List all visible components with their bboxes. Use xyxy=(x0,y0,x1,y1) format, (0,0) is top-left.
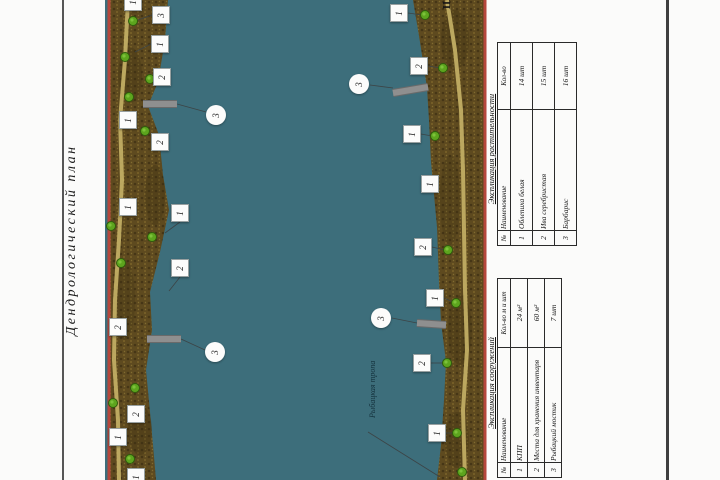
plant-marker-square: 1 xyxy=(403,125,421,143)
marker-number: 3 xyxy=(211,350,220,355)
table-cell: 1 xyxy=(511,463,528,478)
table-cell: 14 шт xyxy=(511,43,533,110)
marker-number: 1 xyxy=(408,132,417,137)
plant-marker-square: 1 xyxy=(119,198,137,216)
water-trail-label: Рыбацкая тропа xyxy=(367,333,452,359)
marker-number: 2 xyxy=(114,325,123,330)
structure-marker-circle: 3 xyxy=(206,105,226,125)
drawing-sheet: Дендрологический план xyxy=(0,0,720,480)
marker-number: 3 xyxy=(377,316,386,321)
plant-marker-square: 2 xyxy=(151,133,169,151)
table-cell: 2 xyxy=(528,463,545,478)
table-cell: Рыбацкий мостик xyxy=(545,348,562,463)
water-trail-label-text: Рыбацкая тропа xyxy=(368,361,377,418)
marker-number: 1 xyxy=(132,475,141,480)
table-cell: 3 xyxy=(545,463,562,478)
column-header: Наименование xyxy=(498,348,511,463)
plant-marker-square: 1 xyxy=(119,111,137,129)
plant-marker-square: 1 xyxy=(109,428,127,446)
marker-number: 2 xyxy=(419,245,428,250)
plant-marker-square: 1 xyxy=(428,424,446,442)
column-header: № xyxy=(498,231,511,246)
plant-marker-square: 1 xyxy=(421,175,439,193)
marker-number: 1 xyxy=(156,42,165,47)
plant-marker-square: 1 xyxy=(171,204,189,222)
structures-table-box: Экспликация сооружений №НаименованиеКол-… xyxy=(486,288,676,369)
marker-number: 2 xyxy=(132,412,141,417)
table-row: 2Ива серебристая15 шт xyxy=(533,43,555,246)
plant-marker-square: 2 xyxy=(410,57,428,75)
drawing-title-text: Дендрологический план xyxy=(64,144,79,335)
marker-number: 1 xyxy=(395,11,404,16)
table-row: 3Барбарис16 шт xyxy=(555,43,577,246)
table-cell: 1 xyxy=(511,231,533,246)
table-cell: 3 xyxy=(555,231,577,246)
marker-number: 1 xyxy=(124,205,133,210)
plant-marker-square: 2 xyxy=(109,318,127,336)
table-row: 1КПП24 м² xyxy=(511,279,528,478)
table-row: 2Места для хранения инвентаря60 м² xyxy=(528,279,545,478)
table-cell: 24 м² xyxy=(511,279,528,348)
marker-number: 2 xyxy=(415,64,424,69)
header-row: №НаименованиеКол-во м и шт xyxy=(498,279,511,478)
column-header: Кол-во xyxy=(498,43,511,110)
plant-marker-square: 1 xyxy=(151,35,169,53)
column-header: № xyxy=(498,463,511,478)
table-cell: Ива серебристая xyxy=(533,110,555,231)
table-cell: 16 шт xyxy=(555,43,577,110)
vegetation-table-title: Экспликация растительности xyxy=(486,52,496,246)
structure-marker-circle: 3 xyxy=(205,342,225,362)
marker-number: 1 xyxy=(124,118,133,123)
marker-number: 1 xyxy=(129,0,138,4)
marker-number: 1 xyxy=(431,296,440,301)
marker-number: 2 xyxy=(156,140,165,145)
plant-marker-square: 2 xyxy=(153,68,171,86)
header-row: №НаименованиеКол-во xyxy=(498,43,511,246)
structures-table: №НаименованиеКол-во м и шт1КПП24 м²2Мест… xyxy=(497,278,562,478)
table-cell: 2 xyxy=(533,231,555,246)
marker-number: 1 xyxy=(114,435,123,440)
marker-number: 2 xyxy=(176,266,185,271)
column-header: Кол-во м и шт xyxy=(498,279,511,348)
marker-number: 3 xyxy=(355,82,364,87)
table-cell: 60 м² xyxy=(528,279,545,348)
marker-number: 2 xyxy=(158,75,167,80)
vegetation-table: №НаименованиеКол-во1Облепиха белая14 шт2… xyxy=(497,42,577,246)
plant-marker-square: 2 xyxy=(127,405,145,423)
plant-marker-square: 2 xyxy=(414,238,432,256)
table-cell: Облепиха белая xyxy=(511,110,533,231)
marker-number: 1 xyxy=(426,182,435,187)
column-header: Наименование xyxy=(498,110,511,231)
plant-marker-square: 1 xyxy=(127,468,145,480)
marker-number: 3 xyxy=(157,13,166,18)
plant-marker-square: 3 xyxy=(152,6,170,24)
marker-number: 2 xyxy=(418,361,427,366)
marker-number: 1 xyxy=(433,431,442,436)
table-cell: КПП xyxy=(511,348,528,463)
plant-marker-square: 1 xyxy=(390,4,408,22)
table-row: 1Облепиха белая14 шт xyxy=(511,43,533,246)
vegetation-table-box: Экспликация растительности №Наименование… xyxy=(486,52,680,145)
plant-marker-square: 2 xyxy=(171,259,189,277)
table-cell: Барбарис xyxy=(555,110,577,231)
plant-marker-square: 1 xyxy=(426,289,444,307)
table-cell: 7 шт xyxy=(545,279,562,348)
plant-marker-square: 1 xyxy=(124,0,142,11)
table-cell: Места для хранения инвентаря xyxy=(528,348,545,463)
marker-number: 3 xyxy=(212,113,221,118)
plan-map: 1312121122211121121213333 Рыбацкая тропа… xyxy=(105,0,490,480)
table-row: 3Рыбацкий мостик7 шт xyxy=(545,279,562,478)
structure-marker-circle: 3 xyxy=(371,308,391,328)
table-cell: 15 шт xyxy=(533,43,555,110)
structures-table-title: Экспликация сооружений xyxy=(486,288,496,478)
marker-layer: 1312121122211121121213333 xyxy=(105,0,490,480)
structure-marker-circle: 3 xyxy=(349,74,369,94)
marker-number: 1 xyxy=(176,211,185,216)
north-mark: Ш xyxy=(441,0,453,9)
